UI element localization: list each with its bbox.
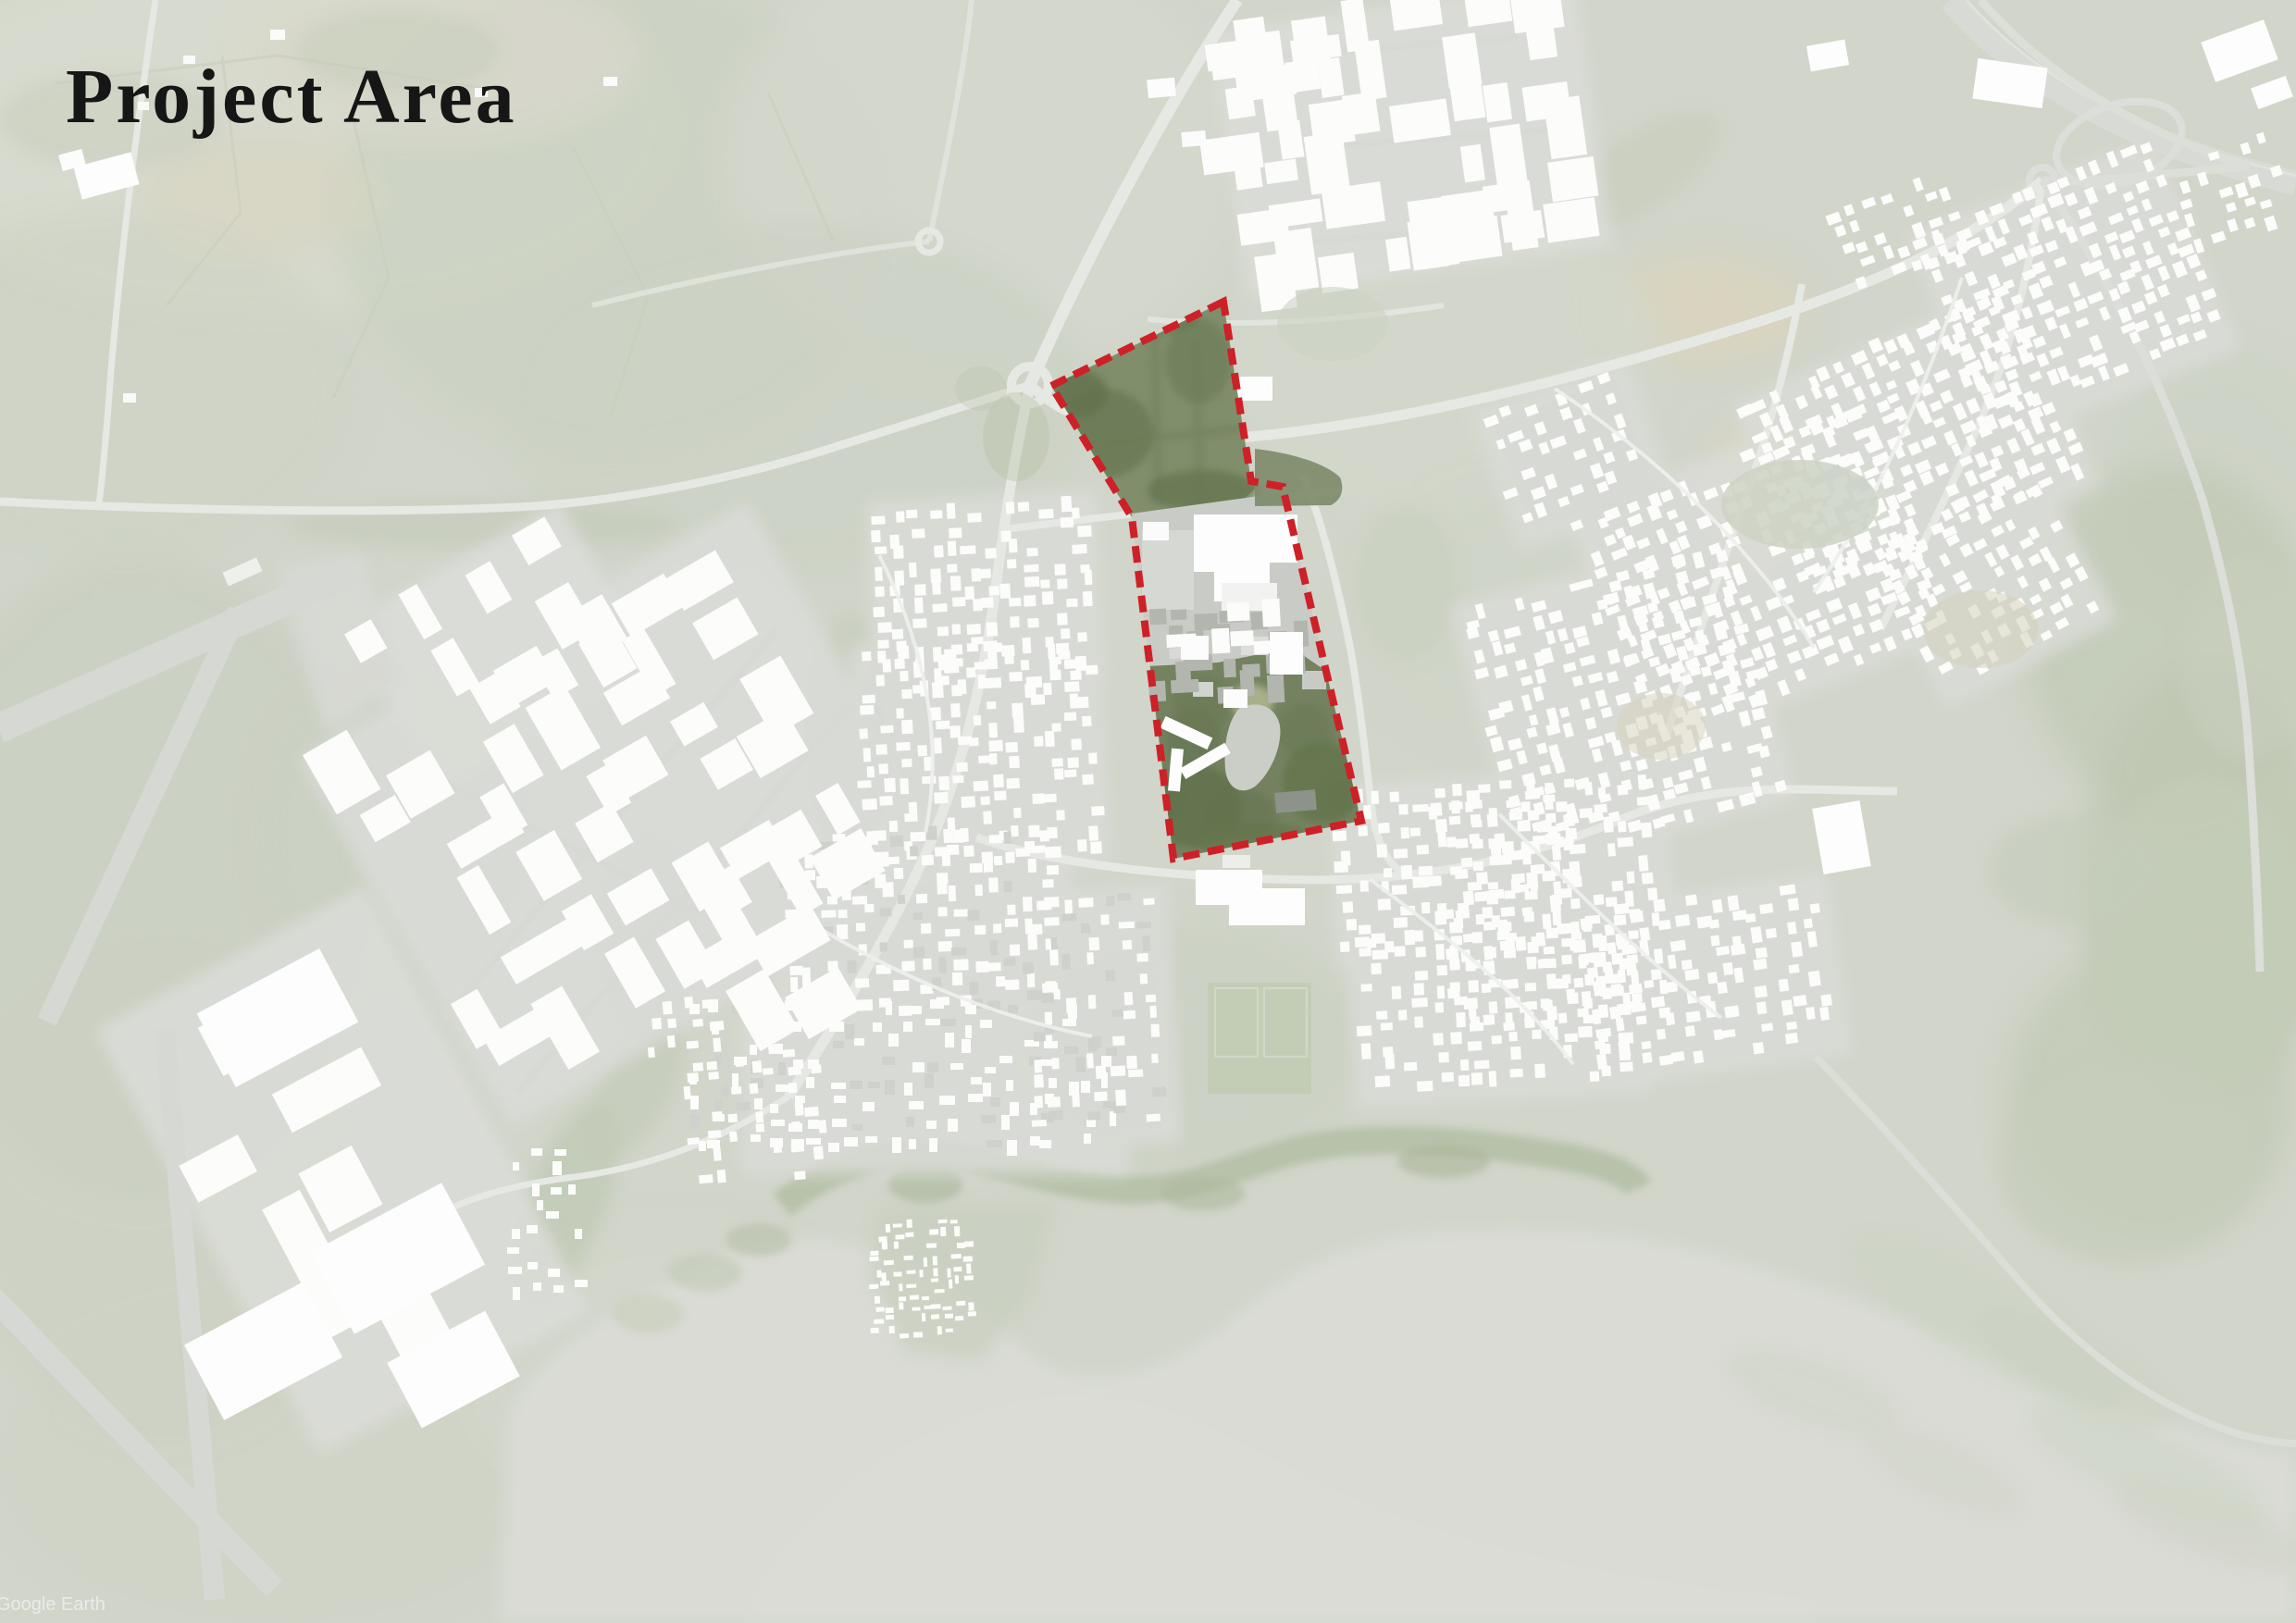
svg-text:Google Earth: Google Earth bbox=[0, 1594, 105, 1615]
svg-text:Project Area: Project Area bbox=[66, 54, 517, 140]
